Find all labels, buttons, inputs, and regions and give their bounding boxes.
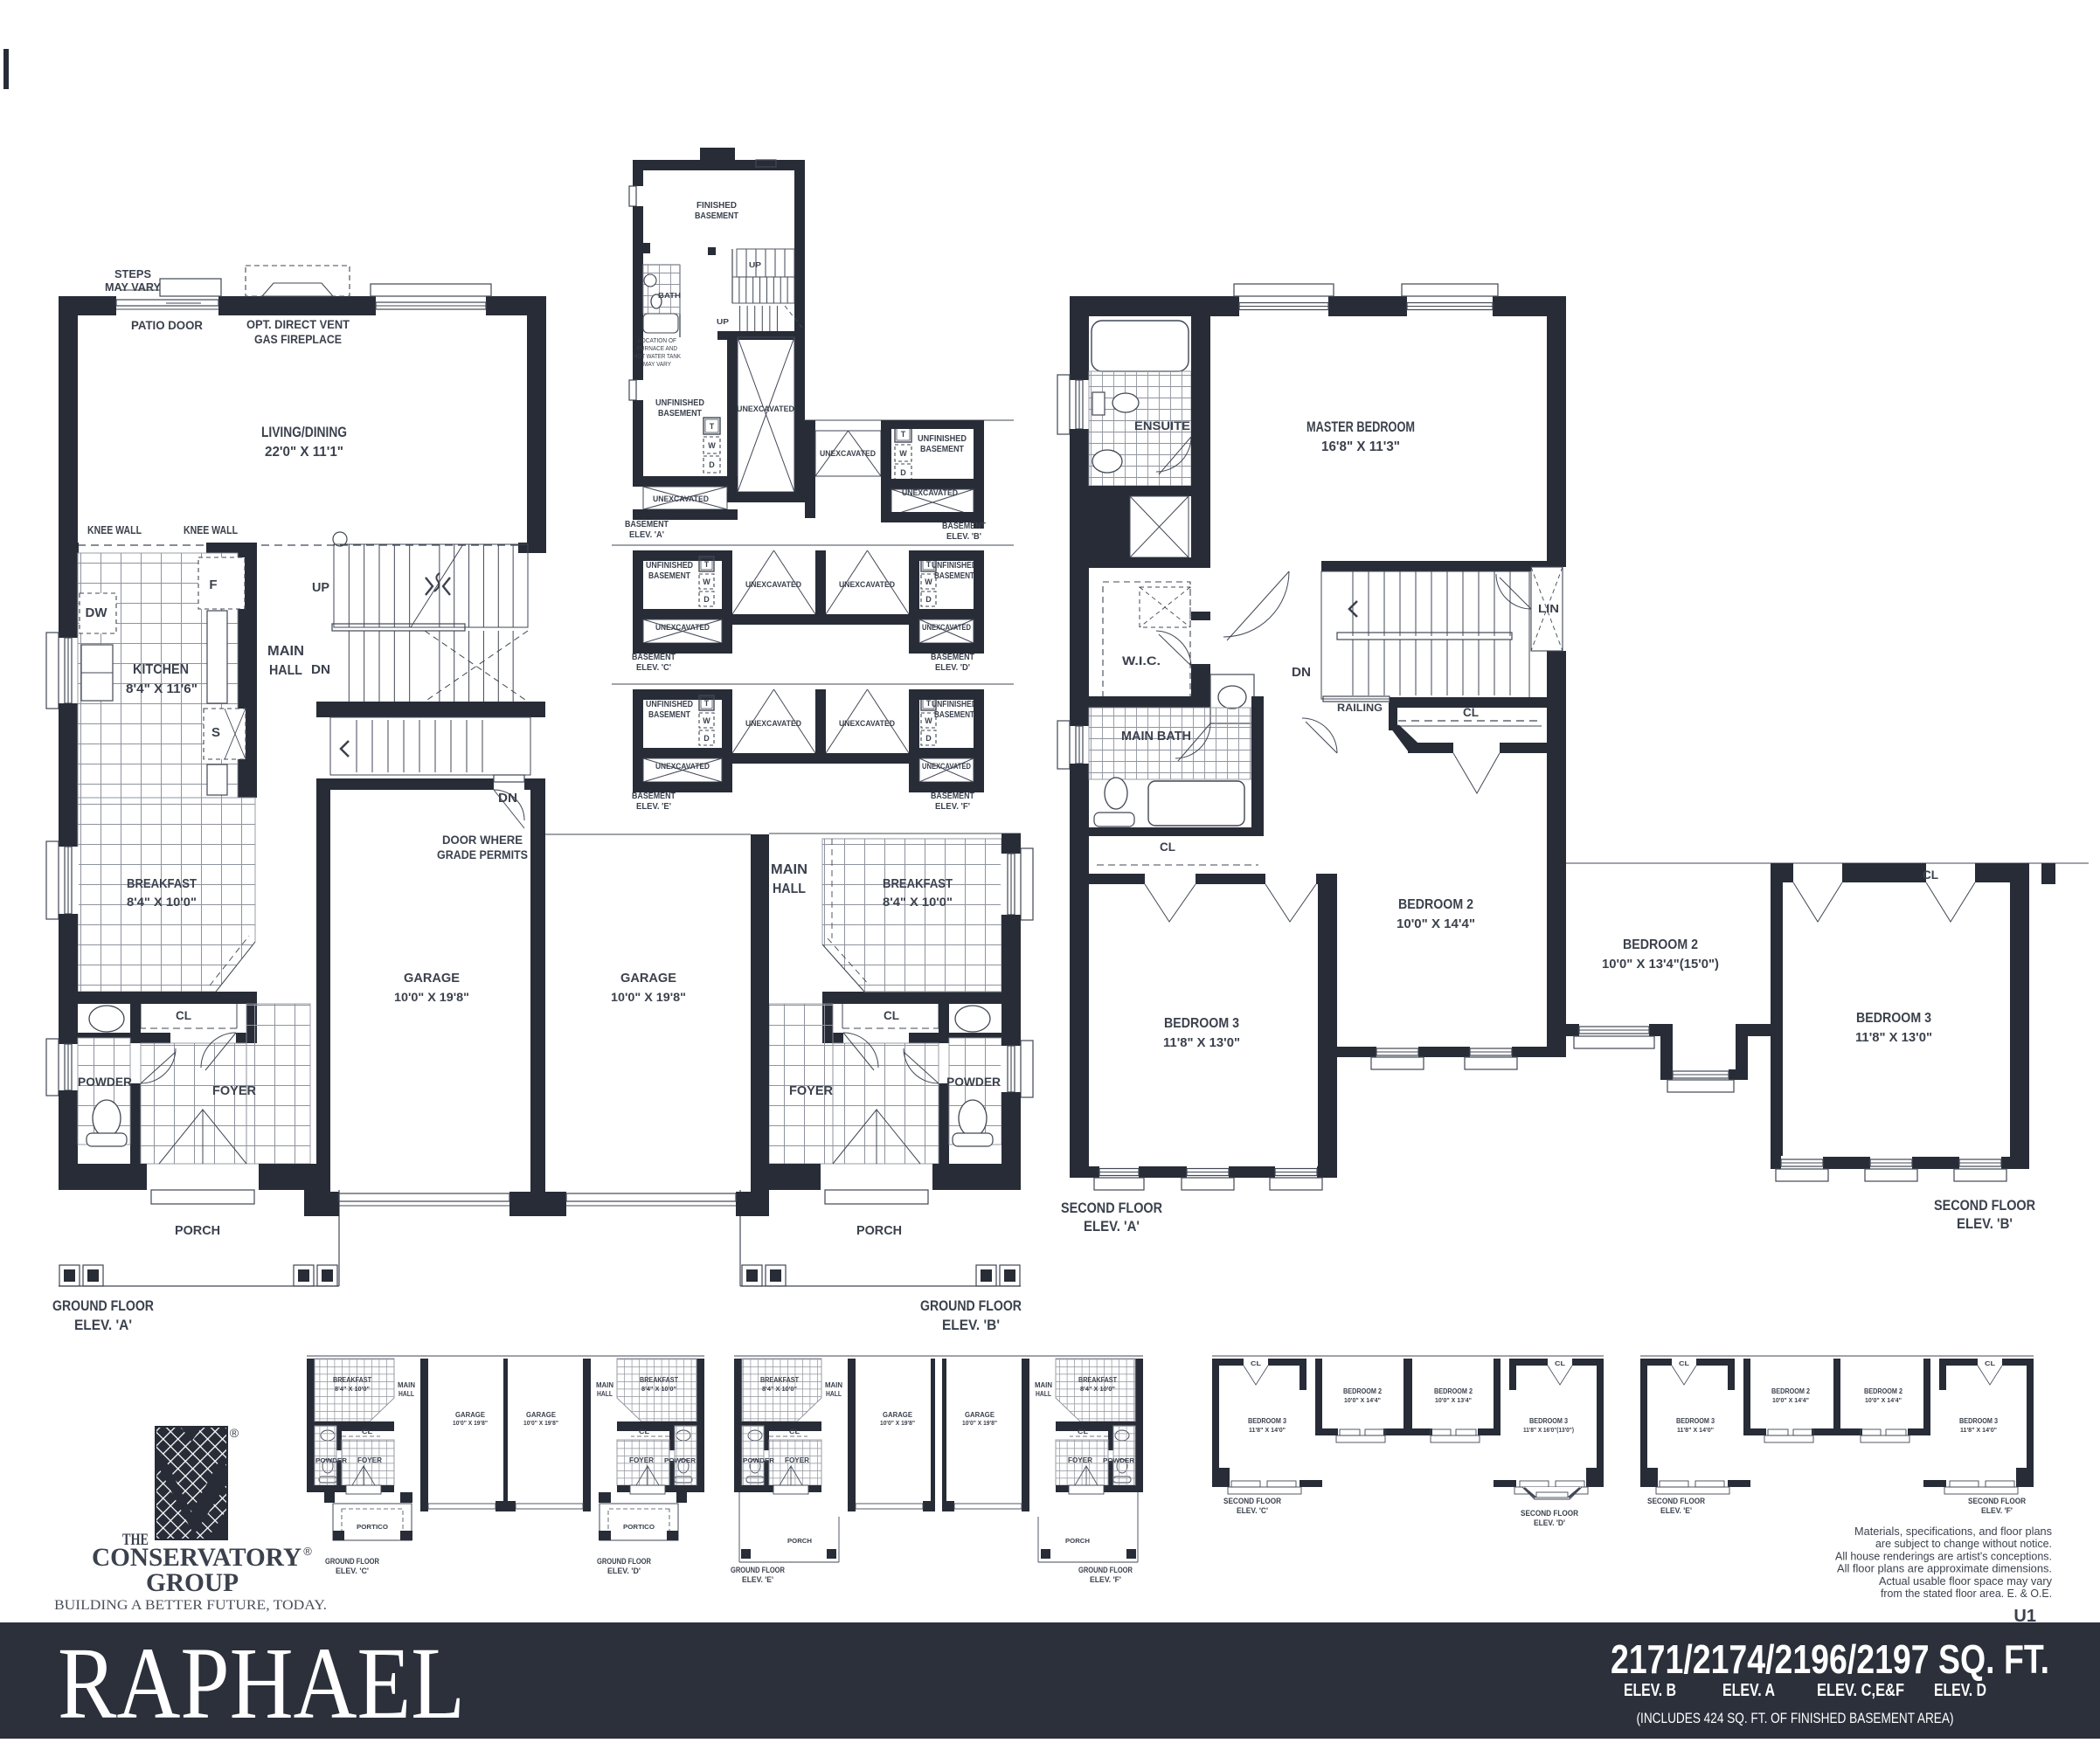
- svg-text:8'4" X 10'0": 8'4" X 10'0": [762, 1385, 797, 1393]
- svg-text:POWDER: POWDER: [664, 1456, 697, 1464]
- svg-text:BASEMENT: BASEMENT: [625, 520, 669, 529]
- svg-text:®: ®: [230, 1426, 239, 1440]
- svg-text:BREAKFAST: BREAKFAST: [1078, 1376, 1117, 1384]
- svg-text:GROUND FLOOR: GROUND FLOOR: [920, 1297, 1022, 1314]
- svg-text:DN: DN: [311, 662, 330, 677]
- svg-text:UNFINISHED: UNFINISHED: [646, 561, 693, 571]
- svg-text:SECOND FLOOR: SECOND FLOOR: [1223, 1497, 1281, 1505]
- svg-text:MASTER BEDROOM: MASTER BEDROOM: [1306, 418, 1415, 435]
- svg-text:DW: DW: [86, 605, 108, 620]
- svg-text:PORTICO: PORTICO: [357, 1523, 388, 1531]
- svg-text:SECOND FLOOR: SECOND FLOOR: [1934, 1197, 2035, 1214]
- svg-text:MAY VARY: MAY VARY: [105, 280, 161, 294]
- svg-text:GROUND FLOOR: GROUND FLOOR: [731, 1566, 785, 1574]
- svg-text:2171/2174/2196/2197 SQ. FT.: 2171/2174/2196/2197 SQ. FT.: [1611, 1636, 2049, 1682]
- svg-text:BEDROOM 3: BEDROOM 3: [1164, 1016, 1239, 1031]
- svg-text:ELEV. A: ELEV. A: [1722, 1681, 1775, 1700]
- svg-text:UNEXCAVATED: UNEXCAVATED: [737, 405, 794, 414]
- svg-text:FOYER: FOYER: [212, 1083, 256, 1098]
- svg-text:10'0" X 19'8": 10'0" X 19'8": [523, 1421, 558, 1427]
- svg-text:ELEV. C,E&F: ELEV. C,E&F: [1817, 1681, 1904, 1700]
- svg-text:CL: CL: [1463, 705, 1479, 719]
- svg-text:GAS FIREPLACE: GAS FIREPLACE: [254, 332, 342, 346]
- svg-text:11'8" X 13'0": 11'8" X 13'0": [1163, 1035, 1240, 1050]
- svg-text:GROUND FLOOR: GROUND FLOOR: [52, 1297, 154, 1314]
- svg-text:are subject to change without: are subject to change without notice.: [1875, 1537, 2052, 1550]
- svg-text:ELEV. 'A': ELEV. 'A': [74, 1317, 132, 1333]
- svg-text:PORCH: PORCH: [1065, 1537, 1090, 1545]
- svg-text:10'0" X 19'8": 10'0" X 19'8": [394, 990, 469, 1004]
- svg-text:CL: CL: [1078, 1428, 1088, 1435]
- svg-text:BEDROOM 2: BEDROOM 2: [1343, 1387, 1382, 1395]
- svg-text:GARAGE: GARAGE: [526, 1411, 557, 1419]
- svg-text:ELEV. 'D': ELEV. 'D': [1534, 1518, 1565, 1527]
- svg-text:UNEXCAVATED: UNEXCAVATED: [820, 449, 876, 459]
- svg-text:ELEV. 'C': ELEV. 'C': [636, 663, 671, 673]
- svg-text:(INCLUDES 424 SQ. FT. OF FINIS: (INCLUDES 424 SQ. FT. OF FINISHED BASEME…: [1637, 1710, 1954, 1726]
- svg-text:ELEV. 'C': ELEV. 'C': [336, 1567, 369, 1575]
- svg-text:BREAKFAST: BREAKFAST: [640, 1376, 678, 1384]
- svg-text:BREAKFAST: BREAKFAST: [760, 1376, 799, 1384]
- svg-text:10'0" X 14'4": 10'0" X 14'4": [1397, 916, 1475, 931]
- svg-text:8'4" X 10'0": 8'4" X 10'0": [883, 895, 953, 909]
- svg-text:BASEMENT: BASEMENT: [632, 653, 676, 662]
- svg-text:UP: UP: [717, 317, 729, 326]
- svg-text:BEDROOM 3: BEDROOM 3: [1248, 1417, 1286, 1425]
- svg-text:GRADE PERMITS: GRADE PERMITS: [437, 848, 528, 861]
- svg-text:KNEE WALL: KNEE WALL: [184, 524, 238, 536]
- svg-text:ELEV. 'F': ELEV. 'F': [1981, 1506, 2013, 1515]
- svg-text:UNEXCAVATED: UNEXCAVATED: [745, 719, 801, 729]
- svg-text:CL: CL: [884, 1008, 899, 1022]
- svg-text:MAIN: MAIN: [1035, 1381, 1052, 1389]
- svg-text:10'0" X 19'8": 10'0" X 19'8": [880, 1421, 915, 1427]
- svg-text:Actual usable floor space may: Actual usable floor space may vary: [1879, 1574, 2052, 1587]
- svg-text:CL: CL: [1251, 1359, 1261, 1367]
- svg-text:D: D: [900, 468, 906, 477]
- svg-text:PORTICO: PORTICO: [623, 1523, 655, 1531]
- svg-text:T: T: [710, 422, 715, 431]
- svg-text:D: D: [925, 595, 932, 604]
- svg-text:POWDER: POWDER: [315, 1456, 348, 1464]
- svg-text:10'0" X 14'4": 10'0" X 14'4": [1865, 1398, 1902, 1404]
- svg-text:UNFINISHED: UNFINISHED: [655, 398, 704, 408]
- svg-text:CL: CL: [1555, 1359, 1565, 1367]
- svg-text:BASEMENT: BASEMENT: [648, 710, 690, 720]
- svg-text:HALL: HALL: [597, 1390, 613, 1398]
- svg-text:FOYER: FOYER: [357, 1456, 382, 1464]
- svg-text:MAIN: MAIN: [596, 1381, 613, 1389]
- svg-text:BASEMENT: BASEMENT: [920, 445, 964, 454]
- svg-text:BASEMENT: BASEMENT: [658, 409, 702, 418]
- svg-text:W: W: [703, 716, 710, 725]
- svg-text:RAPHAEL: RAPHAEL: [58, 1626, 465, 1739]
- svg-text:UNFINISHED: UNFINISHED: [932, 700, 977, 709]
- svg-text:DN: DN: [1292, 665, 1311, 680]
- svg-text:MAIN: MAIN: [771, 862, 807, 877]
- svg-text:ELEV. 'D': ELEV. 'D': [607, 1567, 641, 1575]
- svg-text:®: ®: [303, 1545, 312, 1558]
- svg-text:GARAGE: GARAGE: [883, 1411, 913, 1419]
- svg-text:KNEE WALL: KNEE WALL: [87, 524, 142, 536]
- svg-text:LOCATION OF: LOCATION OF: [638, 336, 676, 344]
- svg-text:FOYER: FOYER: [629, 1456, 654, 1464]
- svg-text:T: T: [926, 560, 932, 569]
- svg-text:FINISHED: FINISHED: [697, 200, 737, 211]
- svg-text:STEPS: STEPS: [114, 267, 151, 280]
- svg-text:FOYER: FOYER: [1068, 1456, 1092, 1464]
- svg-text:GARAGE: GARAGE: [404, 971, 460, 986]
- svg-text:BREAKFAST: BREAKFAST: [883, 876, 953, 891]
- svg-text:UNEXCAVATED: UNEXCAVATED: [653, 495, 709, 504]
- svg-text:POWDER: POWDER: [743, 1456, 775, 1464]
- svg-text:UNEXCAVATED: UNEXCAVATED: [655, 623, 710, 633]
- svg-text:BREAKFAST: BREAKFAST: [333, 1376, 371, 1384]
- svg-text:HALL: HALL: [399, 1390, 414, 1398]
- svg-text:LIN: LIN: [1538, 602, 1559, 615]
- svg-text:UNEXCAVATED: UNEXCAVATED: [745, 580, 801, 590]
- svg-text:BASEMENT: BASEMENT: [632, 792, 676, 801]
- svg-text:D: D: [703, 734, 710, 743]
- svg-text:ELEV. 'E': ELEV. 'E': [636, 802, 671, 812]
- svg-text:ELEV. 'B': ELEV. 'B': [1957, 1215, 2013, 1232]
- svg-text:GROUP: GROUP: [146, 1568, 239, 1597]
- svg-text:ELEV. 'D': ELEV. 'D': [935, 663, 970, 673]
- svg-text:BEDROOM 2: BEDROOM 2: [1434, 1387, 1473, 1395]
- svg-text:8'4" X 10'0": 8'4" X 10'0": [641, 1385, 676, 1393]
- svg-text:UNFINISHED: UNFINISHED: [932, 561, 977, 571]
- svg-text:from the stated floor area. E.: from the stated floor area. E. & O.E.: [1881, 1587, 2052, 1600]
- svg-text:CL: CL: [1923, 868, 1938, 882]
- svg-text:All floor plans are approximat: All floor plans are approximate dimensio…: [1837, 1562, 2052, 1575]
- svg-text:CL: CL: [1679, 1359, 1689, 1367]
- svg-text:10'0" X 13'4": 10'0" X 13'4": [1435, 1398, 1472, 1404]
- svg-text:GROUND FLOOR: GROUND FLOOR: [1078, 1566, 1133, 1574]
- svg-text:BEDROOM 3: BEDROOM 3: [1856, 1011, 1931, 1026]
- svg-text:ELEV. 'A': ELEV. 'A': [629, 530, 664, 540]
- svg-text:UNFINISHED: UNFINISHED: [646, 700, 693, 709]
- svg-text:BEDROOM 3: BEDROOM 3: [1529, 1417, 1568, 1425]
- svg-text:CL: CL: [789, 1428, 800, 1435]
- svg-text:MAIN: MAIN: [825, 1381, 842, 1389]
- svg-text:POWDER: POWDER: [946, 1075, 1001, 1089]
- svg-text:10'0" X 19'8": 10'0" X 19'8": [962, 1421, 997, 1427]
- svg-text:11'8" X 14'0": 11'8" X 14'0": [1677, 1428, 1714, 1434]
- svg-text:ELEV. 'E': ELEV. 'E': [1660, 1506, 1692, 1515]
- svg-text:11'8" X 14'0": 11'8" X 14'0": [1960, 1428, 1997, 1434]
- svg-text:OPT. DIRECT VENT: OPT. DIRECT VENT: [246, 317, 350, 331]
- svg-text:HOT WATER TANK: HOT WATER TANK: [634, 352, 681, 360]
- svg-text:10'0" X 14'4": 10'0" X 14'4": [1344, 1398, 1381, 1404]
- svg-text:BEDROOM 2: BEDROOM 2: [1623, 937, 1698, 952]
- svg-text:22'0" X 11'1": 22'0" X 11'1": [265, 445, 343, 460]
- svg-text:W: W: [925, 578, 932, 586]
- svg-text:W: W: [899, 449, 907, 458]
- svg-text:8'4" X 10'0": 8'4" X 10'0": [1080, 1385, 1115, 1393]
- svg-text:ELEV. 'E': ELEV. 'E': [742, 1575, 773, 1584]
- svg-text:GARAGE: GARAGE: [620, 971, 676, 986]
- svg-text:T: T: [926, 699, 932, 708]
- svg-text:ELEV. 'B': ELEV. 'B': [946, 532, 981, 542]
- svg-text:UNEXCAVATED: UNEXCAVATED: [922, 762, 971, 771]
- svg-text:BEDROOM 2: BEDROOM 2: [1864, 1387, 1902, 1395]
- svg-text:W.I.C.: W.I.C.: [1122, 654, 1161, 667]
- svg-text:D: D: [925, 734, 932, 743]
- svg-text:MAIN: MAIN: [267, 644, 304, 659]
- svg-text:T: T: [901, 430, 906, 439]
- svg-text:HALL: HALL: [773, 882, 806, 896]
- svg-text:ELEV. D: ELEV. D: [1934, 1681, 1986, 1700]
- svg-text:POWDER: POWDER: [78, 1075, 132, 1089]
- svg-text:SECOND FLOOR: SECOND FLOOR: [1061, 1200, 1162, 1216]
- svg-text:UNEXCAVATED: UNEXCAVATED: [922, 623, 971, 633]
- svg-text:W: W: [703, 578, 710, 586]
- svg-text:BEDROOM 2: BEDROOM 2: [1771, 1387, 1810, 1395]
- svg-text:PATIO DOOR: PATIO DOOR: [131, 318, 203, 332]
- svg-text:16'8" X 11'3": 16'8" X 11'3": [1321, 439, 1400, 454]
- svg-text:UNEXCAVATED: UNEXCAVATED: [839, 580, 895, 590]
- svg-text:SECOND FLOOR: SECOND FLOOR: [1647, 1497, 1705, 1505]
- svg-text:UP: UP: [749, 260, 761, 269]
- svg-text:KITCHEN: KITCHEN: [133, 662, 189, 677]
- svg-text:S: S: [211, 725, 220, 740]
- svg-text:PORCH: PORCH: [787, 1537, 812, 1545]
- svg-text:UP: UP: [312, 580, 329, 595]
- svg-text:CL: CL: [1160, 840, 1175, 854]
- svg-text:BASEMENT: BASEMENT: [931, 653, 974, 662]
- svg-text:BASEMENT: BASEMENT: [934, 571, 974, 581]
- svg-text:FURNACE AND: FURNACE AND: [637, 344, 677, 352]
- svg-text:GARAGE: GARAGE: [965, 1411, 995, 1419]
- svg-text:UNFINISHED: UNFINISHED: [918, 434, 967, 444]
- svg-text:8'4" X 10'0": 8'4" X 10'0": [127, 895, 197, 909]
- svg-text:GROUND FLOOR: GROUND FLOOR: [325, 1557, 379, 1566]
- svg-text:BEDROOM 2: BEDROOM 2: [1398, 897, 1473, 912]
- svg-text:POWDER: POWDER: [1103, 1456, 1135, 1464]
- svg-text:CL: CL: [176, 1008, 191, 1022]
- svg-text:UNEXCAVATED: UNEXCAVATED: [902, 488, 958, 498]
- svg-text:FOYER: FOYER: [789, 1083, 833, 1098]
- svg-text:D: D: [703, 595, 710, 604]
- svg-text:CL: CL: [362, 1428, 372, 1435]
- svg-text:BEDROOM 3: BEDROOM 3: [1959, 1417, 1998, 1425]
- svg-text:MAIN: MAIN: [398, 1381, 415, 1389]
- svg-text:BASEMENT: BASEMENT: [931, 792, 974, 801]
- svg-text:Materials, specifications, and: Materials, specifications, and floor pla…: [1854, 1525, 2052, 1538]
- svg-text:ELEV. B: ELEV. B: [1624, 1681, 1676, 1700]
- svg-text:HALL: HALL: [1036, 1390, 1051, 1398]
- svg-text:W: W: [925, 716, 932, 725]
- svg-text:11'8" X 16'0"(13'0"): 11'8" X 16'0"(13'0"): [1523, 1428, 1574, 1434]
- svg-text:BUILDING A BETTER FUTURE, TODA: BUILDING A BETTER FUTURE, TODAY.: [54, 1598, 327, 1613]
- svg-text:DOOR WHERE: DOOR WHERE: [442, 833, 523, 847]
- svg-text:8'4" X 11'6": 8'4" X 11'6": [126, 681, 198, 696]
- svg-text:PORCH: PORCH: [856, 1223, 902, 1238]
- svg-text:PORCH: PORCH: [175, 1223, 220, 1238]
- svg-text:T: T: [704, 699, 710, 708]
- svg-text:D: D: [709, 460, 715, 469]
- svg-text:BASEMENT: BASEMENT: [942, 522, 986, 531]
- svg-text:MAY VARY: MAY VARY: [643, 360, 671, 368]
- svg-text:ELEV. 'C': ELEV. 'C': [1237, 1506, 1268, 1515]
- svg-text:10'0" X 14'4": 10'0" X 14'4": [1772, 1398, 1809, 1404]
- svg-text:BASEMENT: BASEMENT: [648, 571, 690, 581]
- svg-text:UNEXCAVATED: UNEXCAVATED: [839, 719, 895, 729]
- svg-text:HALL: HALL: [269, 663, 302, 678]
- svg-text:BASEMENT: BASEMENT: [695, 211, 738, 221]
- svg-text:DN: DN: [498, 791, 517, 806]
- svg-text:GROUND FLOOR: GROUND FLOOR: [597, 1557, 651, 1566]
- svg-text:SECOND FLOOR: SECOND FLOOR: [1521, 1509, 1578, 1518]
- svg-text:8'4" X 10'0": 8'4" X 10'0": [335, 1385, 370, 1393]
- svg-text:CL: CL: [1985, 1359, 1995, 1367]
- svg-text:11'8" X 13'0": 11'8" X 13'0": [1855, 1030, 1932, 1045]
- svg-text:10'0" X 13'4"(15'0"): 10'0" X 13'4"(15'0"): [1602, 957, 1719, 972]
- svg-text:11'8" X 14'0": 11'8" X 14'0": [1249, 1428, 1286, 1434]
- svg-text:MAIN BATH: MAIN BATH: [1121, 729, 1191, 744]
- svg-text:W: W: [708, 441, 716, 450]
- svg-text:All house renderings are artis: All house renderings are artist's concep…: [1835, 1549, 2052, 1562]
- svg-text:BEDROOM 3: BEDROOM 3: [1676, 1417, 1715, 1425]
- svg-text:ELEV. 'F': ELEV. 'F': [1090, 1575, 1121, 1584]
- svg-text:FOYER: FOYER: [785, 1456, 809, 1464]
- svg-text:ELEV. 'F': ELEV. 'F': [935, 802, 970, 812]
- svg-text:ENSUITE: ENSUITE: [1134, 418, 1190, 432]
- svg-text:10'0" X 19'8": 10'0" X 19'8": [611, 990, 686, 1004]
- svg-text:ELEV. 'A': ELEV. 'A': [1084, 1218, 1140, 1235]
- svg-text:10'0" X 19'8": 10'0" X 19'8": [453, 1421, 488, 1427]
- svg-text:RAILING: RAILING: [1337, 702, 1383, 714]
- svg-text:HALL: HALL: [826, 1390, 842, 1398]
- svg-text:SECOND FLOOR: SECOND FLOOR: [1968, 1497, 2026, 1505]
- svg-text:ELEV. 'B': ELEV. 'B': [942, 1317, 1000, 1333]
- svg-text:BASEMENT: BASEMENT: [934, 710, 974, 720]
- svg-text:UNEXCAVATED: UNEXCAVATED: [655, 762, 710, 771]
- svg-text:F: F: [209, 578, 217, 592]
- svg-text:BATH: BATH: [658, 291, 681, 300]
- svg-text:CL: CL: [639, 1428, 649, 1435]
- svg-text:T: T: [704, 560, 710, 569]
- svg-text:BREAKFAST: BREAKFAST: [127, 876, 197, 891]
- svg-text:GARAGE: GARAGE: [455, 1411, 486, 1419]
- svg-text:LIVING/DINING: LIVING/DINING: [261, 424, 347, 440]
